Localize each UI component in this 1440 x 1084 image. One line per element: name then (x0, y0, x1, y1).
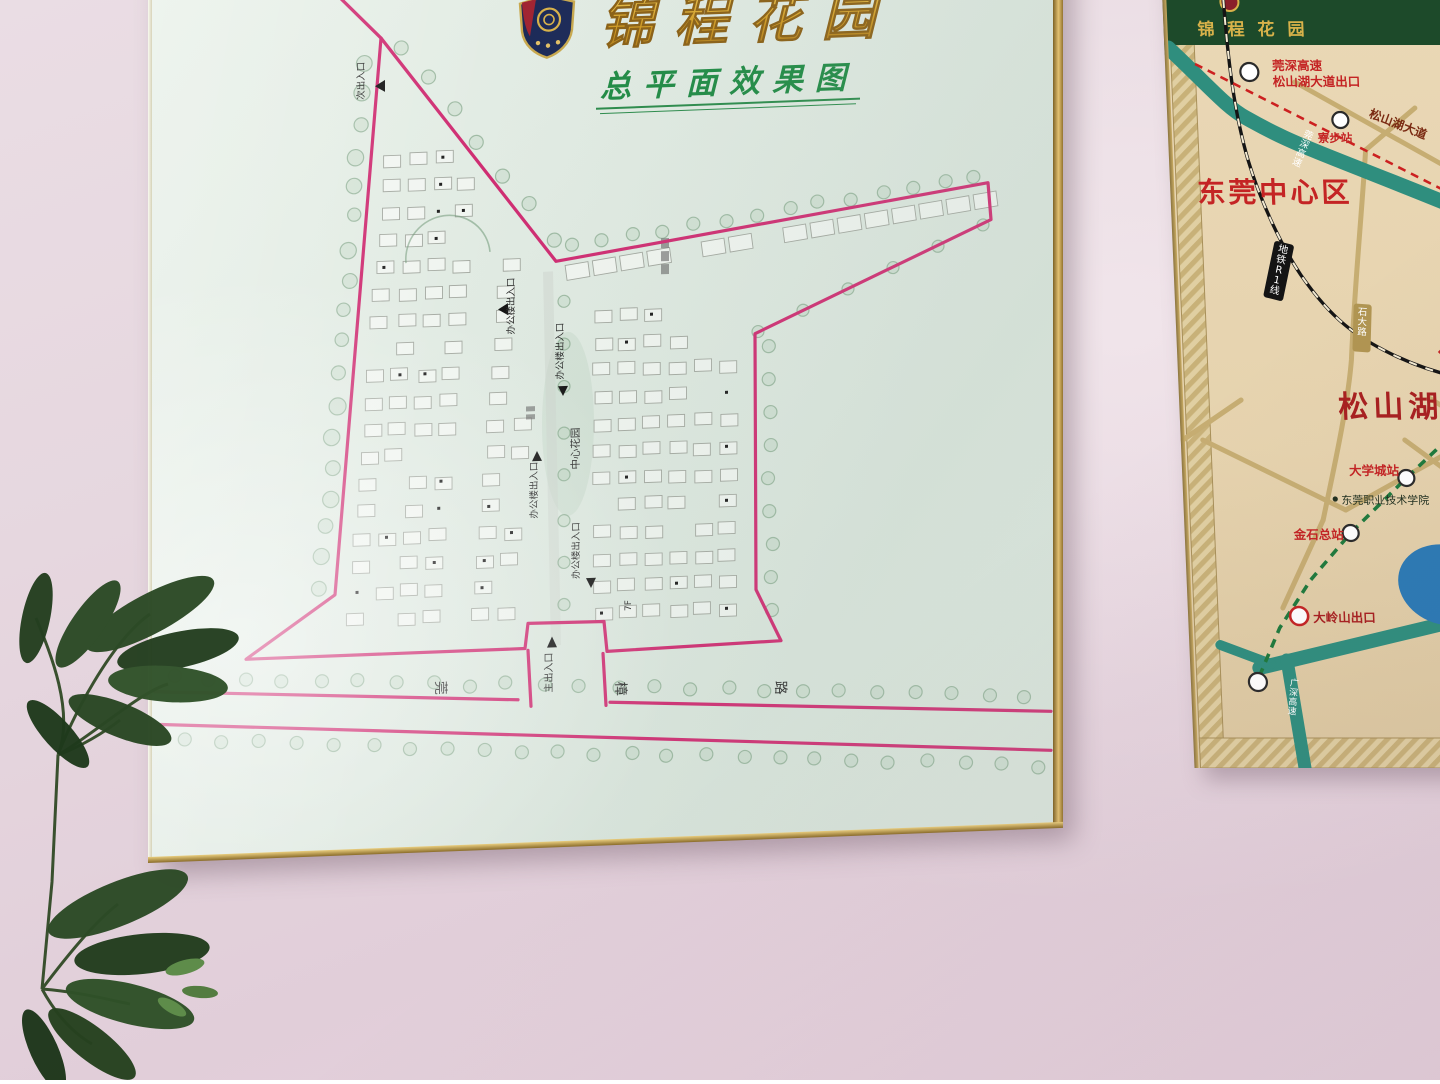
local-roads (1168, 82, 1440, 608)
label-city-center: 东莞中心区 (1197, 176, 1353, 209)
crest-badge-icon-small (1220, 0, 1239, 11)
pattern-border-bottom (1199, 738, 1440, 768)
plant-stems (36, 614, 168, 1044)
site-plan-poster: 锦程花园 总平面效果图 (148, 0, 1060, 860)
gold-frame-bottom (148, 822, 1063, 863)
metro-r1-badge: 地铁R1线 (1263, 240, 1294, 301)
road-name-char-3: 路 (772, 680, 788, 695)
wanshen-expressway-road-label: 莞深高速 (1291, 128, 1316, 170)
shida-road-badge: 石大路 (1352, 303, 1371, 352)
plant-leaves (0, 552, 256, 1080)
label-songshan-lake: 松山湖 (1338, 390, 1440, 425)
pattern-border-left (1170, 38, 1224, 748)
glass-glare (148, 0, 1060, 860)
label-dongguan-polytechnic: 东莞职业技术学院 (1341, 493, 1430, 507)
label-secondary-entrance: 次出入口 (355, 62, 367, 100)
plant-leaf-cluster (13, 563, 243, 1080)
station-markers (1223, 63, 1423, 691)
map-poster-left-edge (1161, 0, 1199, 768)
wall: 锦程花园 总平面效果图 (0, 0, 1440, 1080)
subtitle-underline-2 (600, 104, 856, 114)
road-name-char-2: 樟 (612, 682, 629, 697)
label-dalingshan-exit: 大岭山出口 (1313, 610, 1376, 625)
exit-marker (1290, 607, 1309, 625)
label-university-town-station: 大学城站 (1349, 463, 1400, 478)
poster-left-edge (148, 0, 152, 860)
poster-subtitle: 总平面效果图 (600, 60, 858, 106)
location-map-poster: 锦程花园 (1161, 0, 1440, 768)
red-dashed-route (1195, 64, 1440, 193)
plant (0, 552, 256, 1080)
label-office-entrance-3: 办公楼出入口 (528, 461, 540, 518)
site-boundary (246, 15, 991, 666)
site-boundary-apex-tail (334, 0, 381, 40)
metro-r1-label: 地铁R1线 (1269, 242, 1290, 298)
shida-road-label: 石大路 (1357, 307, 1368, 339)
entrance-arrows (375, 72, 596, 654)
label-exit-line1: 莞深高速 (1271, 58, 1323, 73)
internal-road (548, 271, 556, 645)
building-dots (356, 145, 728, 624)
label-liaobu-station: 寮步站 (1317, 131, 1354, 145)
label-office-entrance-1: 办公楼出入口 (505, 277, 517, 334)
tree-canopy-arc (406, 214, 490, 263)
poster-title: 锦程花园 (600, 0, 896, 57)
green-dashed-line (1247, 428, 1440, 680)
expressways (1168, 48, 1440, 768)
guangshen-expressway-road-label: 广深高速 (1287, 677, 1299, 718)
crest-badge-icon (520, 0, 574, 59)
road-name-char-1: 莞 (432, 680, 448, 695)
poi-bullet (1333, 496, 1338, 501)
central-garden-area (542, 331, 594, 517)
entrance-throat (528, 647, 606, 708)
subtitle-underline (596, 99, 860, 109)
label-exit-line2: 松山湖大道出口 (1272, 74, 1360, 89)
tree-circles (168, 16, 1044, 807)
lake (1390, 534, 1440, 636)
gold-frame-right (1053, 0, 1063, 825)
label-central-garden: 中心花园 (569, 427, 582, 469)
map-poster-title: 锦程花园 (1197, 19, 1318, 40)
small-illegible-labels (526, 238, 669, 419)
label-office-entrance-4: 办公楼出入口 (570, 522, 582, 579)
label-office-entrance-2: 办公楼出入口 (554, 322, 566, 379)
metro-line (1223, 0, 1440, 377)
label-main-entrance: 主出入口 (542, 652, 555, 692)
road-lines (155, 657, 1051, 784)
building-blocks (346, 129, 997, 631)
label-floor-7f: 7F (624, 600, 634, 611)
label-songshanhu-avenue: 松山湖大道 (1367, 106, 1429, 142)
location-map-drawing: 锦程花园 (1161, 0, 1440, 768)
site-plan-drawing: 锦程花园 总平面效果图 (148, 0, 1060, 860)
label-jinshi-terminal: 金石总站 (1292, 527, 1344, 542)
poster-header-band (1162, 0, 1440, 45)
